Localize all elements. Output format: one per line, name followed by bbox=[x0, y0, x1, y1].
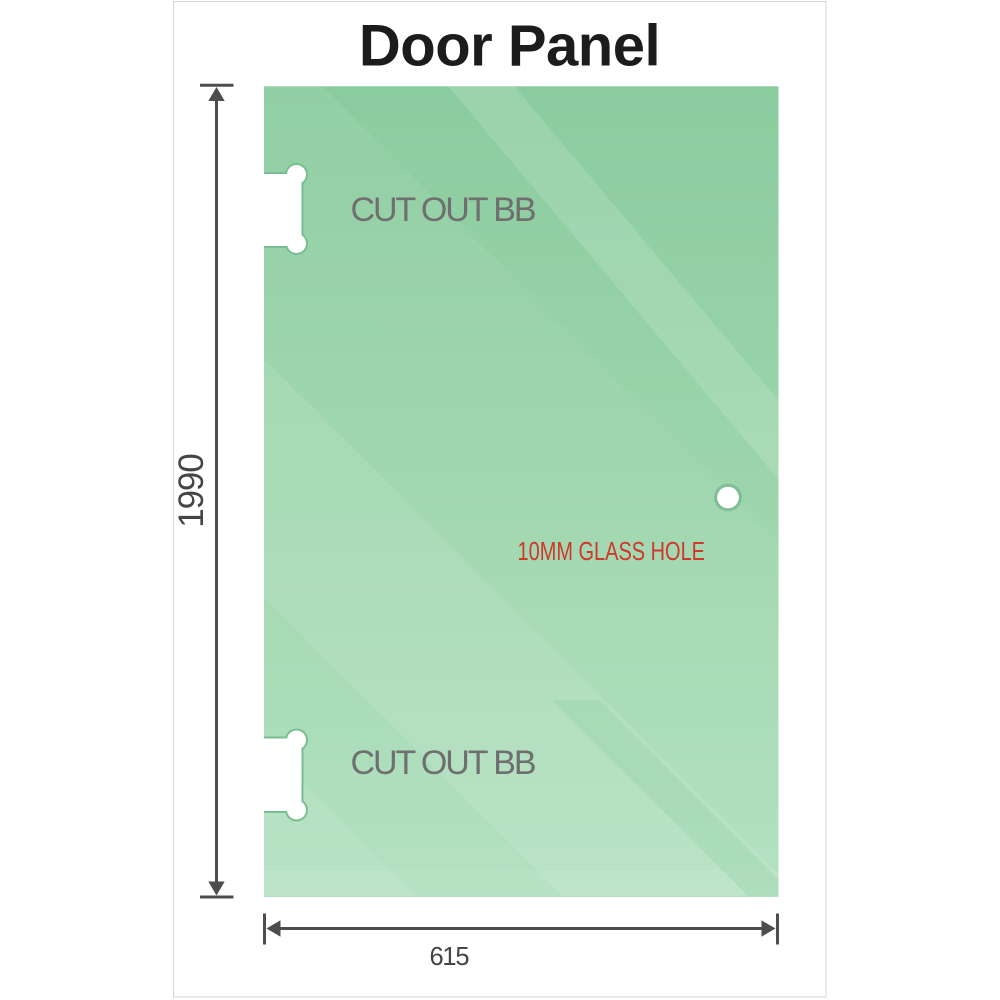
svg-text:Door Panel: Door Panel bbox=[359, 14, 660, 79]
svg-text:10MM GLASS HOLE: 10MM GLASS HOLE bbox=[518, 536, 706, 566]
svg-text:CUT OUT BB: CUT OUT BB bbox=[351, 191, 537, 229]
svg-text:615: 615 bbox=[430, 943, 470, 971]
svg-text:1990: 1990 bbox=[172, 453, 211, 528]
svg-text:CUT OUT BB: CUT OUT BB bbox=[351, 744, 537, 782]
